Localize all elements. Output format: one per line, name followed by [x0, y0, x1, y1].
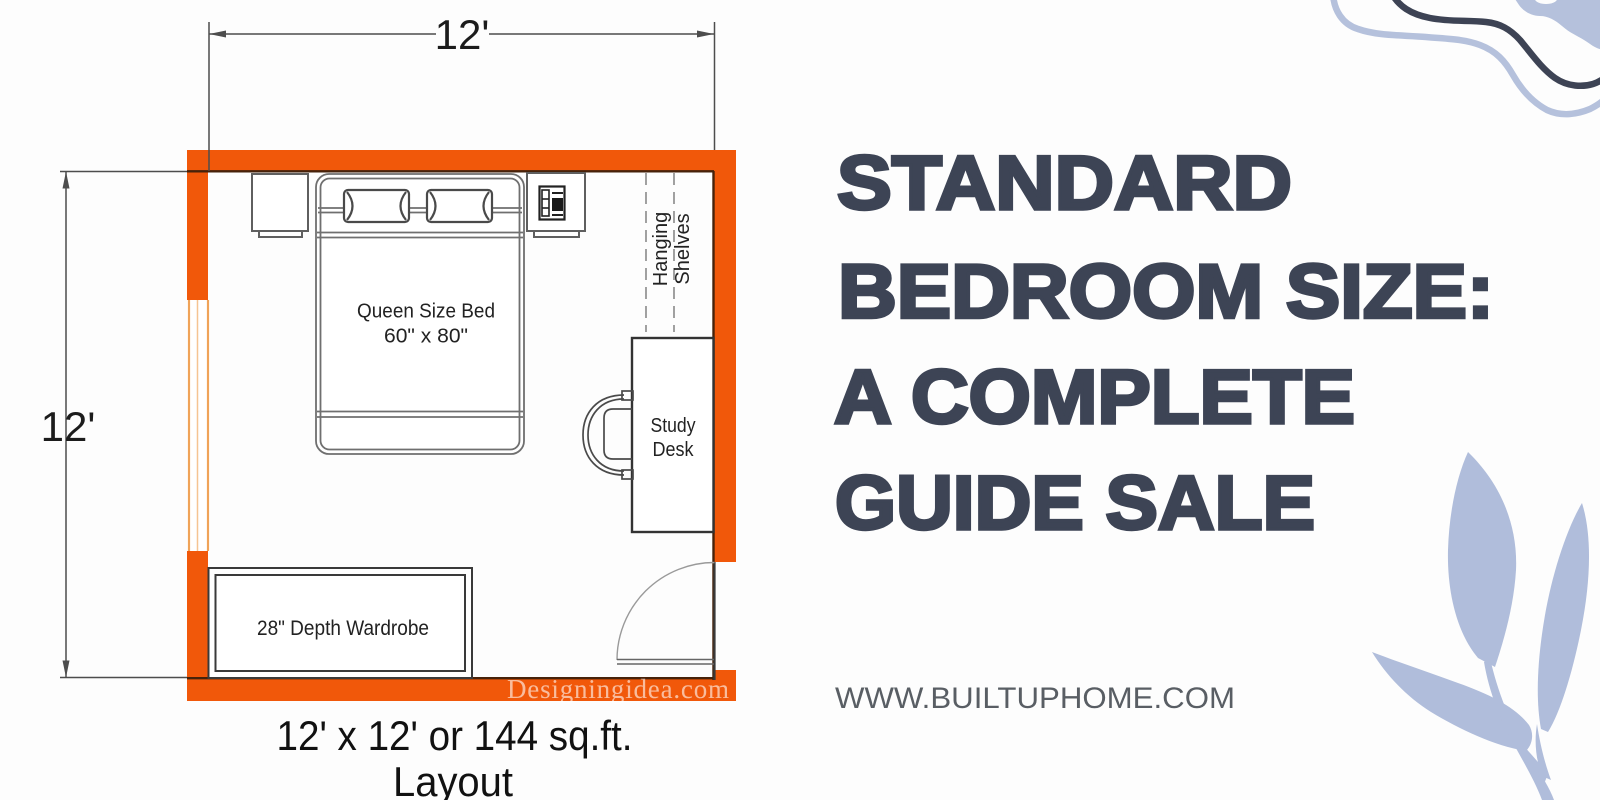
svg-text:28" Depth Wardrobe: 28" Depth Wardrobe — [257, 617, 429, 640]
svg-text:12': 12' — [435, 11, 490, 58]
svg-text:12': 12' — [41, 403, 96, 450]
svg-text:Layout: Layout — [393, 758, 513, 800]
svg-text:60" x 80": 60" x 80" — [384, 326, 468, 348]
svg-text:HangingShelves: HangingShelves — [650, 212, 694, 287]
svg-text:STANDARD: STANDARD — [837, 141, 1292, 226]
svg-text:Study: Study — [651, 415, 696, 437]
svg-text:WWW.BUILTUPHOME.COM: WWW.BUILTUPHOME.COM — [835, 682, 1235, 715]
svg-text:Desk: Desk — [653, 439, 695, 461]
svg-text:GUIDE SALE: GUIDE SALE — [835, 461, 1315, 546]
svg-text:Queen Size Bed: Queen Size Bed — [357, 301, 495, 323]
svg-text:BEDROOM SIZE:: BEDROOM SIZE: — [838, 250, 1494, 335]
svg-text:12' x 12' or 144 sq.ft.: 12' x 12' or 144 sq.ft. — [277, 712, 633, 759]
svg-text:A COMPLETE: A COMPLETE — [834, 355, 1355, 440]
svg-text:Designingidea.com: Designingidea.com — [507, 674, 729, 704]
